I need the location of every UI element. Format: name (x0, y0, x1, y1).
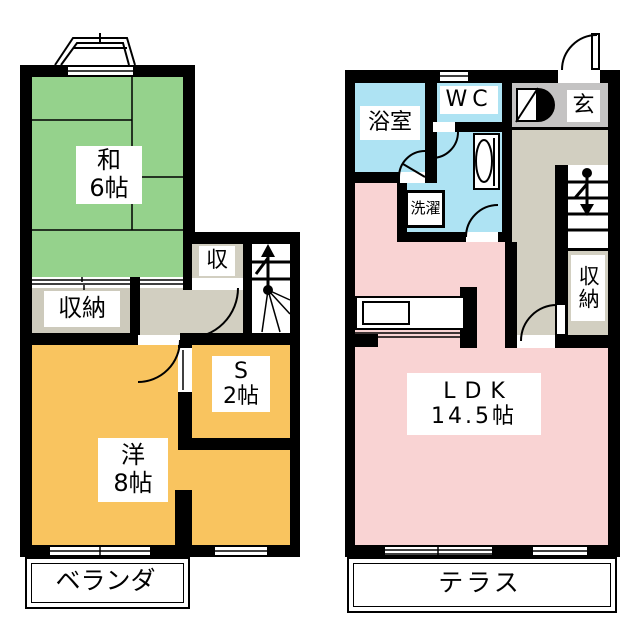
shoe-cabinet-glyph (516, 88, 555, 122)
door-arc-entrance (562, 35, 597, 70)
washitsu-size: 6帖 (89, 175, 128, 203)
floorplan-canvas: 和 6帖 収 収納 S 2帖 洋 8帖 ベランダ 浴室 WC 洗濯 玄 収納 L… (0, 0, 640, 640)
storage-right-name: 収納 (576, 265, 600, 311)
kitchen-counter-lines (355, 333, 460, 337)
terrace-name: テラス (438, 569, 522, 598)
entrance-name: 玄 (572, 93, 594, 118)
label-terrace: テラス (347, 561, 613, 605)
label-ldk: LDK 14.5帖 (407, 373, 541, 435)
label-washitsu: 和 6帖 (76, 146, 142, 204)
label-entrance: 玄 (567, 90, 600, 122)
door-arc-western-room (138, 340, 180, 382)
washbasin-glyph (476, 138, 494, 186)
western-size: 8帖 (113, 470, 152, 498)
label-laundry: 洗濯 (409, 194, 442, 224)
door-arc-washroom (466, 205, 498, 237)
wc-name: WC (445, 87, 492, 112)
label-storage-left: 収納 (44, 291, 120, 327)
door-arc-wc (432, 132, 458, 158)
ldk-name: LDK (434, 379, 514, 404)
bay-window (55, 33, 135, 65)
veranda-name: ベランダ (55, 567, 155, 596)
stairs-icon-left (252, 244, 290, 332)
label-storage-right: 収納 (571, 255, 605, 321)
label-veranda: ベランダ (25, 560, 186, 602)
service-size: 2帖 (223, 384, 259, 409)
stairs-icon-right (568, 168, 608, 230)
label-service-room: S 2帖 (212, 356, 270, 412)
door-leaf-bathroom (403, 164, 425, 177)
service-name: S (234, 359, 248, 384)
closet-name: 収 (206, 248, 228, 273)
door-arc-hall-ldk (521, 305, 557, 341)
label-wc: WC (440, 86, 498, 114)
storage-left-name: 収納 (58, 295, 106, 323)
ldk-size: 14.5帖 (431, 404, 517, 429)
door-arc-closet-hall (188, 288, 238, 338)
door-arcs (138, 35, 597, 382)
label-closet: 収 (199, 246, 235, 276)
bathroom-name: 浴室 (368, 110, 412, 135)
washitsu-name: 和 (97, 147, 121, 175)
label-bathroom: 浴室 (360, 106, 420, 140)
label-western-room: 洋 8帖 (98, 438, 168, 502)
door-arc-bathroom (399, 151, 425, 177)
laundry-name: 洗濯 (410, 200, 440, 217)
western-name: 洋 (121, 442, 145, 470)
